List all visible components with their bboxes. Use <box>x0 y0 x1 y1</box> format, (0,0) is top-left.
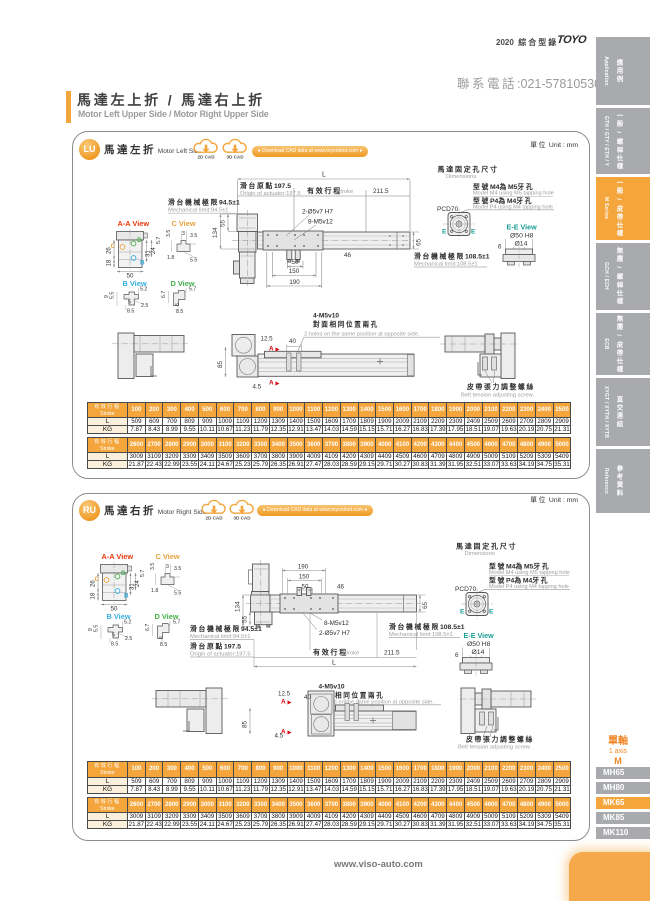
svg-text:5.2: 5.2 <box>140 287 147 293</box>
svg-text:Origin of actuator:197.5: Origin of actuator:197.5 <box>240 191 301 197</box>
svg-text:65: 65 <box>416 238 423 246</box>
svg-text:4.5: 4.5 <box>275 733 284 740</box>
svg-text:5.7: 5.7 <box>189 287 196 293</box>
svg-text:3.5: 3.5 <box>190 233 197 239</box>
svg-text:12.5: 12.5 <box>278 691 291 698</box>
svg-text:E-E View: E-E View <box>507 223 538 232</box>
svg-text:3: 3 <box>182 231 185 237</box>
svg-text:211.5: 211.5 <box>384 650 400 657</box>
svg-text:46: 46 <box>337 584 344 591</box>
svg-text:E: E <box>442 229 447 236</box>
svg-text:12.5: 12.5 <box>261 336 274 343</box>
svg-text:8-M5v12: 8-M5v12 <box>324 620 349 627</box>
svg-text:2-Ø5v7 H7: 2-Ø5v7 H7 <box>319 630 350 637</box>
svg-text:2 holes on the same position a: 2 holes on the same position at opposite… <box>304 332 420 338</box>
svg-text:Mechanical limit:108.5±1: Mechanical limit:108.5±1 <box>414 262 478 268</box>
svg-text:Belt tension adjusting screw.: Belt tension adjusting screw. <box>461 393 535 399</box>
svg-text:46: 46 <box>344 252 351 259</box>
svg-text:85: 85 <box>242 720 249 728</box>
svg-text:8.5: 8.5 <box>127 309 134 315</box>
svg-text:4-M5v10: 4-M5v10 <box>313 313 339 320</box>
svg-text:8-M5v12: 8-M5v12 <box>308 219 333 226</box>
svg-text:3.5: 3.5 <box>166 230 172 237</box>
svg-text:A: A <box>269 380 274 387</box>
svg-text:8.5: 8.5 <box>176 309 183 315</box>
svg-text:L: L <box>322 172 326 179</box>
svg-text:150: 150 <box>289 268 300 275</box>
svg-text:50: 50 <box>292 259 299 266</box>
svg-text:馬達固定孔尺寸: 馬達固定孔尺寸 <box>456 542 517 551</box>
svg-text:A: A <box>281 699 286 706</box>
svg-text:滑台機械極限108.5±1: 滑台機械極限108.5±1 <box>414 252 490 261</box>
svg-text:4.5: 4.5 <box>253 384 262 391</box>
svg-text:55: 55 <box>242 615 249 623</box>
svg-text:134: 134 <box>212 227 219 238</box>
svg-text:50: 50 <box>302 584 309 591</box>
svg-text:6: 6 <box>175 303 181 306</box>
svg-text:B: B <box>140 260 145 267</box>
svg-text:40: 40 <box>304 694 311 701</box>
svg-text:5.7: 5.7 <box>156 237 162 244</box>
svg-text:211.5: 211.5 <box>373 188 389 195</box>
svg-text:D: D <box>137 237 142 244</box>
svg-text:190: 190 <box>289 279 300 286</box>
svg-text:134: 134 <box>235 601 242 612</box>
svg-text:滑台機械極限108.5±1: 滑台機械極限108.5±1 <box>389 622 465 631</box>
svg-text:Dimensions: Dimensions <box>465 551 495 557</box>
svg-text:1.8: 1.8 <box>167 255 174 261</box>
svg-text:65: 65 <box>422 601 429 609</box>
svg-text:PCD70: PCD70 <box>437 206 459 213</box>
svg-text:A-A View: A-A View <box>118 219 150 228</box>
svg-text:Stroke: Stroke <box>343 651 360 657</box>
svg-text:2.5: 2.5 <box>141 303 148 309</box>
svg-text:85: 85 <box>217 360 224 368</box>
svg-text:Belt tension adjusting screw.: Belt tension adjusting screw. <box>458 745 532 751</box>
svg-text:2 holes on the same position a: 2 holes on the same position at opposite… <box>319 699 435 705</box>
svg-text:A: A <box>269 346 274 353</box>
svg-text:滑台原點197.5: 滑台原點197.5 <box>240 181 291 190</box>
svg-text:24: 24 <box>151 247 157 254</box>
svg-text:Mechanical limit:94.5±1: Mechanical limit:94.5±1 <box>190 634 251 640</box>
svg-text:Origin of actuator:197.5: Origin of actuator:197.5 <box>190 652 251 658</box>
svg-text:2-Ø5v7 H7: 2-Ø5v7 H7 <box>302 209 333 216</box>
svg-text:對面相同位置兩孔: 對面相同位置兩孔 <box>313 320 379 329</box>
svg-text:5: 5 <box>128 300 131 306</box>
svg-text:5.5: 5.5 <box>110 292 116 299</box>
svg-text:滑台機械極限94.5±1: 滑台機械極限94.5±1 <box>168 198 240 207</box>
svg-text:皮帶張力調整螺絲: 皮帶張力調整螺絲 <box>466 382 535 391</box>
svg-text:40: 40 <box>289 338 296 345</box>
svg-text:26: 26 <box>107 247 113 254</box>
svg-text:150: 150 <box>299 574 310 581</box>
svg-text:190: 190 <box>298 564 309 571</box>
svg-text:Model M4 using M5 tapping hole: Model M4 using M5 tapping hole <box>473 191 554 197</box>
svg-text:4-M5v10: 4-M5v10 <box>319 684 345 691</box>
svg-text:6: 6 <box>498 244 502 251</box>
svg-text:Ø14: Ø14 <box>515 241 528 248</box>
svg-text:Mechanical limit:94.5±1: Mechanical limit:94.5±1 <box>168 208 229 214</box>
svg-text:Stroke: Stroke <box>337 189 354 195</box>
svg-text:L: L <box>332 660 336 667</box>
svg-text:6.7: 6.7 <box>161 291 167 298</box>
svg-text:E: E <box>471 229 476 236</box>
svg-text:Dimensions: Dimensions <box>446 174 476 180</box>
svg-text:Mechanical limit:108.5±1: Mechanical limit:108.5±1 <box>389 632 453 638</box>
svg-text:滑台機械極限94.5±1: 滑台機械極限94.5±1 <box>190 624 262 633</box>
svg-text:5.5: 5.5 <box>190 258 197 264</box>
svg-text:皮帶張力調整螺絲: 皮帶張力調整螺絲 <box>465 735 534 744</box>
svg-text:18: 18 <box>107 259 113 266</box>
svg-text:滑台原點197.5: 滑台原點197.5 <box>190 642 241 651</box>
svg-text:馬達固定孔尺寸: 馬達固定孔尺寸 <box>438 165 499 174</box>
svg-text:C View: C View <box>172 219 196 228</box>
svg-text:Ø50 H8: Ø50 H8 <box>510 233 534 240</box>
